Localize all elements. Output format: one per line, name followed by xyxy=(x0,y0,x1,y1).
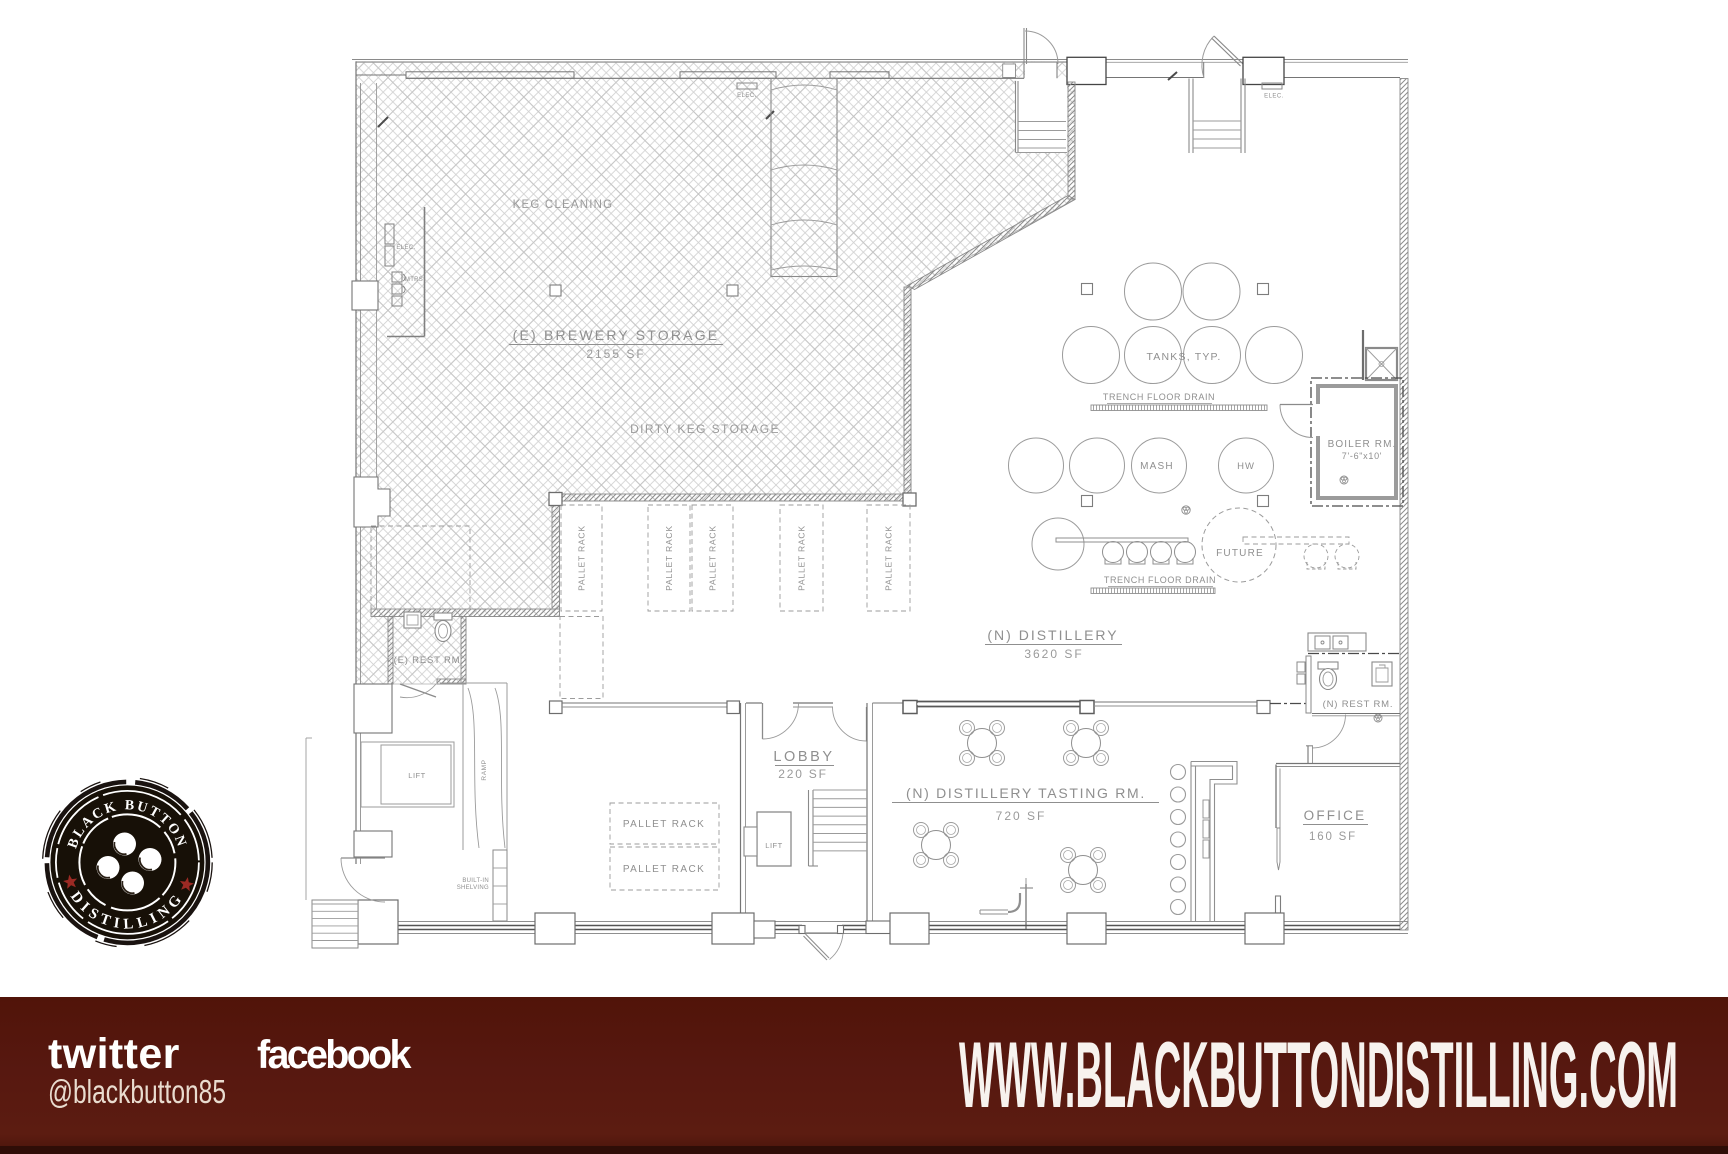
svg-text:SHELVING: SHELVING xyxy=(457,885,489,891)
svg-text:(N) DISTILLERY TASTING RM.: (N) DISTILLERY TASTING RM. xyxy=(906,785,1146,801)
svg-text:HW: HW xyxy=(1237,461,1255,472)
svg-text:LIFT: LIFT xyxy=(765,841,782,850)
svg-text:FUTURE: FUTURE xyxy=(1216,548,1264,559)
svg-text:TRENCH FLOOR DRAIN: TRENCH FLOOR DRAIN xyxy=(1104,575,1216,585)
svg-text:DIRTY KEG STORAGE: DIRTY KEG STORAGE xyxy=(630,422,780,436)
svg-text:MTRS: MTRS xyxy=(405,277,423,283)
svg-text:MASH: MASH xyxy=(1140,461,1174,472)
svg-text:KEG CLEANING: KEG CLEANING xyxy=(513,199,614,211)
svg-text:3620 SF: 3620 SF xyxy=(1024,647,1083,661)
svg-text:PALLET RACK: PALLET RACK xyxy=(664,525,674,591)
svg-text:PALLET RACK: PALLET RACK xyxy=(708,525,718,591)
svg-text:720 SF: 720 SF xyxy=(996,809,1047,823)
svg-text:ELEC.: ELEC. xyxy=(737,93,757,99)
svg-text:BOILER RM.: BOILER RM. xyxy=(1328,439,1397,450)
svg-text:facebook: facebook xyxy=(257,1033,412,1077)
svg-text:BUILT-IN: BUILT-IN xyxy=(462,878,489,884)
svg-text:(N) REST RM.: (N) REST RM. xyxy=(1323,699,1394,710)
svg-text:160 SF: 160 SF xyxy=(1309,831,1357,843)
svg-text:220 SF: 220 SF xyxy=(778,767,828,781)
svg-text:PALLET RACK: PALLET RACK xyxy=(623,864,705,875)
svg-text:(E) REST RM: (E) REST RM xyxy=(394,655,461,666)
svg-text:(N) DISTILLERY: (N) DISTILLERY xyxy=(987,627,1118,643)
svg-text:ELEC.: ELEC. xyxy=(1264,94,1284,100)
svg-text:TRENCH FLOOR DRAIN: TRENCH FLOOR DRAIN xyxy=(1103,392,1215,402)
svg-text:PALLET RACK: PALLET RACK xyxy=(884,525,894,591)
svg-text:PALLET RACK: PALLET RACK xyxy=(623,819,705,830)
svg-text:OFFICE: OFFICE xyxy=(1304,808,1367,823)
svg-text:twitter: twitter xyxy=(48,1030,180,1078)
svg-text:PALLET RACK: PALLET RACK xyxy=(577,525,587,591)
svg-text:LOBBY: LOBBY xyxy=(773,749,834,765)
svg-text:@blackbutton85: @blackbutton85 xyxy=(48,1073,226,1110)
svg-text:LIFT: LIFT xyxy=(408,771,425,780)
svg-text:2155 SF: 2155 SF xyxy=(586,347,645,361)
svg-text:RAMP: RAMP xyxy=(481,759,488,780)
svg-text:ELEC.: ELEC. xyxy=(396,245,415,251)
svg-text:TANKS, TYP.: TANKS, TYP. xyxy=(1146,351,1221,363)
svg-text:WWW.BLACKBUTTONDISTILLING.COM: WWW.BLACKBUTTONDISTILLING.COM xyxy=(959,1022,1678,1127)
svg-text:PALLET RACK: PALLET RACK xyxy=(797,525,807,591)
svg-text:(E) BREWERY STORAGE: (E) BREWERY STORAGE xyxy=(513,327,720,343)
svg-text:7'-6"x10': 7'-6"x10' xyxy=(1342,451,1382,461)
